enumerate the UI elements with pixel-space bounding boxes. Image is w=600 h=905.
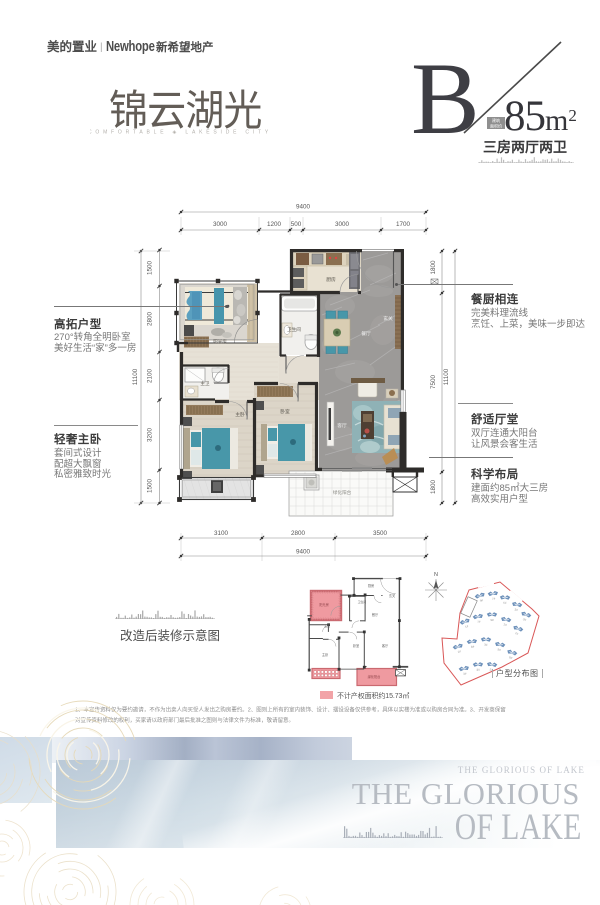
svg-text:1#: 1# [464, 624, 469, 629]
svg-text:3#: 3# [463, 671, 467, 676]
svg-text:2800: 2800 [147, 312, 154, 327]
svg-text:客厅: 客厅 [337, 422, 347, 429]
svg-text:3500: 3500 [373, 530, 388, 537]
svg-text:3000: 3000 [335, 221, 350, 228]
svg-text:3#: 3# [522, 617, 527, 622]
svg-text:阳光房: 阳光房 [213, 338, 227, 345]
svg-text:阳光房: 阳光房 [319, 602, 329, 607]
svg-text:3#: 3# [484, 643, 488, 647]
svg-text:2800: 2800 [291, 530, 306, 537]
svg-text:9#: 9# [497, 647, 501, 652]
svg-text:3200: 3200 [147, 428, 154, 443]
svg-text:卧室: 卧室 [280, 408, 290, 415]
svg-text:2#: 2# [503, 622, 507, 627]
svg-text:11100: 11100 [443, 368, 450, 385]
svg-text:500: 500 [291, 221, 302, 228]
svg-text:厨房: 厨房 [326, 276, 336, 283]
svg-text:8#: 8# [509, 655, 514, 660]
svg-text:3000: 3000 [213, 221, 228, 228]
svg-text:面积约: 面积约 [490, 123, 502, 129]
svg-text:1800: 1800 [430, 480, 437, 495]
svg-text:8#: 8# [471, 645, 475, 649]
svg-text:厨房: 厨房 [368, 583, 374, 588]
svg-text:7#: 7# [492, 596, 496, 600]
svg-text:主卫: 主卫 [324, 623, 331, 628]
svg-text:9400: 9400 [296, 549, 311, 556]
svg-text:餐厅: 餐厅 [372, 612, 379, 617]
svg-text:7#: 7# [477, 619, 481, 624]
svg-text:绿化阳台: 绿化阳台 [368, 674, 381, 679]
svg-text:1200: 1200 [267, 221, 282, 228]
svg-text:卧室: 卧室 [353, 643, 359, 648]
svg-text:1#: 1# [457, 649, 462, 654]
svg-text:9400: 9400 [296, 204, 311, 211]
svg-text:主卫: 主卫 [200, 380, 210, 386]
svg-text:建筑: 建筑 [492, 117, 500, 123]
svg-text:9#: 9# [490, 618, 494, 622]
svg-text:3#: 3# [476, 668, 480, 672]
svg-text:1500: 1500 [147, 479, 154, 494]
svg-text:3#: 3# [514, 607, 518, 612]
svg-text:玄关: 玄关 [383, 315, 393, 322]
svg-text:主卧: 主卧 [235, 411, 245, 418]
svg-text:6#: 6# [503, 601, 507, 605]
svg-text:1800: 1800 [430, 260, 437, 275]
svg-text:2100: 2100 [147, 369, 154, 384]
svg-text:绿化阳台: 绿化阳台 [333, 489, 352, 496]
svg-text:9#: 9# [479, 598, 484, 603]
svg-text:7500: 7500 [430, 375, 437, 390]
svg-text:餐厅: 餐厅 [361, 330, 371, 337]
svg-text:1700: 1700 [396, 221, 411, 228]
svg-text:7#: 7# [514, 631, 519, 636]
svg-text:11100: 11100 [132, 368, 139, 385]
svg-text:N: N [434, 572, 438, 578]
svg-text:主卧: 主卧 [322, 652, 329, 657]
svg-text:1500: 1500 [147, 261, 154, 276]
svg-text:玄关: 玄关 [389, 593, 396, 598]
svg-text:3100: 3100 [214, 530, 229, 537]
svg-text:客厅: 客厅 [382, 643, 389, 648]
svg-text:卫生间: 卫生间 [358, 600, 367, 604]
svg-text:COMFORTABLE ◈ LAKESIDE CITY: COMFORTABLE ◈ LAKESIDE CITY [90, 130, 272, 136]
svg-text:卫生间: 卫生间 [287, 326, 301, 333]
